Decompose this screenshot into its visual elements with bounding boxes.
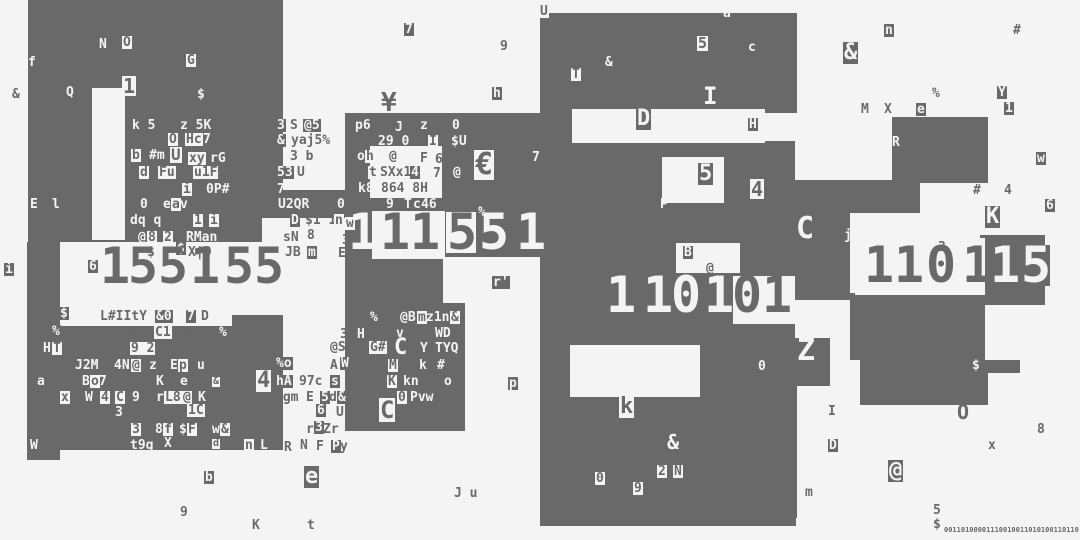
- glyph-run: &: [220, 423, 230, 436]
- glyph-run: T: [52, 342, 62, 355]
- glyph-run: F: [420, 152, 428, 165]
- glyph-run: SXx1: [380, 166, 411, 179]
- glyph-run: 7: [277, 183, 285, 196]
- glyph-run: m: [805, 486, 813, 499]
- glyph-run: 1: [180, 342, 188, 355]
- glyph-run: A: [330, 359, 338, 372]
- glyph-run: D: [828, 439, 838, 452]
- glyph-run: Hc: [185, 133, 203, 146]
- glyph-run: 3 b: [290, 150, 313, 163]
- glyph-run: U: [539, 5, 549, 18]
- glyph-run: &: [843, 42, 858, 64]
- glyph-run: #: [973, 184, 981, 197]
- glyph-run: X: [884, 103, 892, 116]
- glyph-run: &: [450, 311, 460, 324]
- center-number-digit: 1: [704, 275, 732, 316]
- glyph-run: O: [957, 402, 969, 422]
- glyph-run: &: [605, 56, 613, 69]
- glyph-run: n: [334, 214, 344, 227]
- glyph-run: b: [131, 149, 141, 162]
- glyph-run: xy: [188, 152, 206, 165]
- glyph-run: @: [452, 166, 462, 179]
- right-number-digit: 1: [962, 245, 990, 286]
- glyph-run: 8: [307, 229, 315, 242]
- mid-number-digit: 1: [348, 212, 376, 253]
- glyph-run: @: [131, 359, 141, 372]
- glyph-run: @S: [330, 341, 346, 354]
- mid-number-digit: 1: [410, 212, 438, 253]
- glyph-run: s: [788, 121, 796, 134]
- glyph-run: B: [683, 246, 693, 259]
- bg-block-dark: [892, 117, 988, 183]
- glyph-run: &: [212, 377, 220, 387]
- glyph-run: W: [29, 439, 39, 452]
- glyph-run: 1: [1004, 102, 1014, 115]
- left-number-digit: 5: [254, 246, 282, 287]
- glyph-run: Z: [797, 336, 815, 366]
- glyph-run: 29 0: [378, 135, 409, 148]
- glyph-run: $U: [451, 135, 467, 148]
- glyph-run: 9: [132, 391, 140, 404]
- glyph-run: 7: [99, 375, 107, 388]
- glyph-run: z 5K: [180, 119, 211, 132]
- glyph-run: N: [673, 465, 683, 478]
- glyph-run: #: [1013, 24, 1021, 37]
- glyph-run: p6: [355, 119, 371, 132]
- glyph-run: k: [419, 359, 427, 372]
- glyph-run: p: [508, 377, 518, 390]
- glyph-run: 3: [276, 119, 286, 132]
- glyph-run: R: [284, 441, 292, 454]
- glyph-run: Q: [66, 86, 74, 99]
- glyph-run: 6: [435, 153, 443, 166]
- glyph-run: E: [30, 198, 38, 211]
- glyph-run: x: [60, 391, 70, 404]
- glyph-run: H: [43, 342, 51, 355]
- glyph-run: w: [1036, 152, 1046, 165]
- glyph-run: b: [204, 471, 214, 484]
- glyph-run: x: [988, 439, 996, 452]
- glyph-run: €: [474, 150, 494, 180]
- glyph-run: 3: [115, 406, 123, 419]
- glyph-run: #m: [149, 149, 165, 162]
- center-number-digit: 0: [671, 275, 699, 316]
- glyph-run: 4N: [114, 359, 130, 372]
- glyph-run: kn: [403, 375, 419, 388]
- glyph-run: z: [420, 119, 428, 132]
- mid-number-digit: 1: [380, 212, 408, 253]
- glyph-run: @5: [303, 119, 321, 132]
- glyph-run: e: [916, 103, 926, 116]
- glyph-run: f: [28, 56, 36, 69]
- bg-block-light: [92, 88, 125, 240]
- glyph-run: 4: [410, 166, 420, 179]
- glyph-run: z1n: [426, 311, 449, 324]
- glyph-run: Y: [997, 86, 1007, 99]
- glyph-run: 2: [657, 465, 667, 478]
- bg-block-dark: [28, 0, 283, 242]
- glyph-run: 7: [203, 133, 211, 146]
- glyph-run: o: [357, 150, 365, 163]
- glyph-run: &: [667, 432, 679, 452]
- glyph-run: W: [85, 391, 93, 404]
- mid-number-digit: 5: [446, 212, 476, 253]
- glyph-run: X: [164, 437, 172, 450]
- glyph-run: 3: [378, 359, 386, 372]
- glyph-run: 5: [933, 504, 941, 517]
- glyph-run: R: [892, 136, 900, 149]
- glyph-run: dq q: [130, 214, 161, 227]
- glyph-run: 1C: [187, 404, 205, 417]
- glyph-run: 0: [595, 472, 605, 485]
- glyph-run: 5: [698, 163, 713, 185]
- glyph-run: Pvw: [410, 391, 433, 404]
- glyph-run: 864 8H: [381, 182, 428, 195]
- glyph-run: A: [844, 200, 852, 213]
- glyph-run: $: [59, 307, 69, 320]
- glyph-run: A: [275, 406, 283, 419]
- glyph-run: 7: [186, 310, 196, 323]
- glyph-run: 4: [1004, 184, 1012, 197]
- glyph-run: r': [492, 276, 510, 289]
- glyph-run: t: [368, 166, 378, 179]
- right-number-digit: 1: [864, 245, 892, 286]
- glyph-run: K: [985, 206, 1000, 228]
- glyph-run: F: [187, 423, 197, 436]
- glyph-run: H: [748, 118, 758, 131]
- glyph-run: C1: [154, 326, 172, 339]
- glyph-run: 6: [1045, 199, 1055, 212]
- glyph-run: J u: [454, 487, 477, 500]
- glyph-run: i: [4, 263, 14, 276]
- glyph-run: k8: [358, 182, 374, 195]
- glyph-run: v: [180, 198, 188, 211]
- glyph-run: %o: [275, 357, 293, 370]
- glyph-run: h: [492, 87, 502, 100]
- glyph-run: Zr: [323, 423, 339, 436]
- glyph-run: S: [290, 119, 298, 132]
- glyph-run: d: [212, 439, 220, 449]
- glyph-run: o: [444, 375, 452, 388]
- glyph-run: U: [297, 166, 305, 179]
- glyph-run: e: [180, 375, 188, 388]
- glyph-run: 3: [131, 423, 141, 436]
- glyph-run: hA: [275, 375, 293, 388]
- glyph-run: 53: [276, 166, 294, 179]
- bg-block-light: [572, 109, 765, 143]
- glyph-run: B: [82, 375, 90, 388]
- glyph-run: u1F: [193, 166, 218, 179]
- glyph-run: K: [387, 375, 397, 388]
- glitch-art-canvas: i&fNOGQ$1k 5z 5KOHc7b#mUxyrGdFuu1FSi0P#7…: [0, 0, 1080, 540]
- glyph-run: M: [861, 103, 869, 116]
- glyph-run: C: [115, 391, 125, 404]
- glyph-run: #: [436, 359, 446, 372]
- glyph-run: rG: [210, 152, 226, 165]
- glyph-run: $: [972, 359, 980, 372]
- glyph-run: u: [196, 359, 206, 372]
- glyph-run: 5: [697, 36, 708, 51]
- left-number-digit: 1: [190, 246, 218, 287]
- glyph-run: T: [571, 68, 581, 81]
- glyph-run: h: [365, 150, 375, 163]
- bg-block-dark: [850, 293, 985, 360]
- glyph-run: 1: [193, 214, 203, 227]
- glyph-run: r: [306, 423, 314, 436]
- binary-ticker: 00110100001110010011010100110110: [944, 526, 1079, 534]
- left-number-digit: 1: [100, 246, 128, 287]
- glyph-run: M: [388, 359, 398, 372]
- glyph-run: 97c: [299, 375, 322, 388]
- glyph-run: 1: [122, 76, 136, 96]
- glyph-run: P: [660, 198, 668, 211]
- glyph-run: C: [796, 214, 814, 244]
- glyph-run: k: [619, 396, 634, 418]
- glyph-run: 0: [140, 198, 148, 211]
- glyph-run: 7: [433, 167, 441, 180]
- glyph-run: D: [290, 214, 300, 227]
- glyph-run: &: [337, 391, 347, 404]
- glyph-run: &: [276, 134, 286, 147]
- left-number-digit: 5: [158, 246, 186, 287]
- right-number-digit: 5: [1020, 245, 1050, 286]
- glyph-run: j: [844, 229, 852, 242]
- glyph-run: t: [307, 519, 315, 532]
- glyph-run: 9: [180, 506, 188, 519]
- glyph-run: d: [329, 391, 337, 404]
- center-number-digit: 0: [732, 275, 760, 316]
- glyph-run: H: [356, 328, 366, 341]
- glyph-run: JB: [285, 246, 301, 259]
- glyph-run: 6: [88, 260, 98, 273]
- glyph-run: l: [52, 198, 60, 211]
- glyph-run: G: [186, 54, 196, 67]
- glyph-run: %: [370, 311, 378, 324]
- glyph-run: Fu: [158, 166, 176, 179]
- glyph-run: D: [636, 108, 651, 130]
- glyph-run: 4: [256, 370, 271, 392]
- glyph-run: 8: [1037, 423, 1045, 436]
- glyph-run: L#IItY: [100, 310, 147, 323]
- bg-block-dark: [720, 360, 797, 518]
- bg-block-light: [662, 157, 724, 203]
- glyph-run: C: [394, 337, 407, 359]
- glyph-run: L: [130, 328, 138, 341]
- glyph-run: K: [252, 519, 260, 532]
- mid-number-digit: 1: [516, 212, 544, 253]
- glyph-run: U: [170, 147, 182, 163]
- glyph-run: t9g: [130, 439, 153, 452]
- glyph-run: 0: [397, 391, 407, 404]
- glyph-run: @: [389, 150, 397, 163]
- glyph-run: z: [149, 359, 157, 372]
- glyph-run: s: [330, 375, 340, 388]
- glyph-run: TYQ: [435, 342, 458, 355]
- glyph-run: a: [723, 7, 731, 20]
- glyph-run: sgm: [275, 391, 298, 404]
- glyph-run: 7: [532, 151, 540, 164]
- glyph-run: m: [307, 246, 317, 259]
- glyph-run: d: [139, 166, 149, 179]
- glyph-run: w: [212, 423, 220, 436]
- glyph-run: 8: [155, 423, 163, 436]
- glyph-run: N: [300, 439, 308, 452]
- glyph-run: K: [156, 375, 164, 388]
- glyph-run: &: [12, 88, 20, 101]
- glyph-run: %: [932, 87, 940, 100]
- glyph-run: $: [933, 518, 941, 531]
- glyph-run: W: [340, 357, 350, 370]
- glyph-run: G#: [369, 341, 387, 354]
- mid-number-digit: 5: [479, 212, 507, 253]
- glyph-run: N: [99, 38, 107, 51]
- glyph-run: 9 2: [130, 342, 155, 355]
- glyph-run: r: [156, 391, 164, 404]
- glyph-run: 0: [337, 198, 345, 211]
- glyph-run: 0P#: [206, 183, 229, 196]
- glyph-run: $: [197, 88, 205, 101]
- glyph-run: %2: [184, 328, 200, 341]
- glyph-run: F: [316, 440, 324, 453]
- glyph-run: k 5: [132, 119, 155, 132]
- glyph-run: C: [379, 398, 395, 422]
- glyph-run: E: [306, 391, 314, 404]
- glyph-run: J: [395, 121, 403, 134]
- glyph-run: Y: [420, 342, 428, 355]
- glyph-run: yaj5%: [290, 134, 331, 147]
- bg-block-dark: [540, 13, 797, 113]
- glyph-run: WD: [435, 327, 451, 340]
- glyph-run: @B: [400, 311, 416, 324]
- glyph-run: n: [884, 24, 894, 37]
- glyph-run: %: [51, 325, 61, 338]
- glyph-run: f: [163, 423, 173, 436]
- right-number-digit: 0: [926, 245, 954, 286]
- right-number-digit: 1: [894, 245, 922, 286]
- glyph-run: i: [182, 183, 192, 196]
- center-number-digit: 1: [606, 275, 634, 316]
- glyph-run: sN: [283, 231, 299, 244]
- glyph-run: y: [340, 440, 348, 453]
- right-number-digit: 1: [990, 245, 1018, 286]
- glyph-run: I: [428, 135, 438, 148]
- glyph-run: E: [170, 359, 178, 372]
- glyph-run: e: [304, 466, 319, 488]
- glyph-run: I: [828, 405, 836, 418]
- glyph-run: p: [178, 359, 188, 372]
- glyph-run: 6: [316, 404, 326, 417]
- glyph-run: 9: [500, 40, 508, 53]
- glyph-run: 7: [404, 23, 414, 36]
- center-number-digit: 1: [643, 275, 671, 316]
- glyph-run: 4: [100, 391, 110, 404]
- left-number-digit: 5: [128, 246, 156, 287]
- glyph-run: U C: [336, 406, 359, 419]
- glyph-run: 2: [236, 455, 244, 468]
- glyph-run: 9: [633, 482, 643, 495]
- glyph-run: O: [122, 36, 132, 49]
- glyph-run: S: [126, 176, 139, 198]
- glyph-run: $1 1: [305, 214, 336, 227]
- glyph-run: U2QR: [278, 198, 309, 211]
- glyph-run: i: [209, 214, 219, 227]
- glyph-run: c: [748, 41, 756, 54]
- glyph-run: a: [37, 375, 45, 388]
- glyph-run: D: [201, 310, 209, 323]
- glyph-run: @: [888, 460, 903, 482]
- glyph-run: %: [218, 326, 228, 339]
- glyph-run: J2M: [75, 359, 98, 372]
- glyph-run: ¥: [381, 90, 397, 116]
- glyph-run: L: [260, 439, 268, 452]
- glyph-run: 0: [452, 119, 460, 132]
- glyph-run: 4: [750, 179, 764, 199]
- center-number-digit: 1: [762, 275, 790, 316]
- glyph-run: $: [179, 423, 187, 436]
- glyph-run: n: [244, 439, 254, 452]
- bg-block-dark: [860, 360, 1020, 373]
- bg-block-light: [570, 345, 700, 397]
- glyph-run: Sb: [210, 359, 226, 372]
- glyph-run: &0: [155, 310, 173, 323]
- glyph-run: L8: [164, 391, 182, 404]
- glyph-run: I: [703, 84, 717, 108]
- glyph-run: %: [452, 393, 460, 406]
- glyph-run: 0: [758, 360, 766, 373]
- glyph-run: e: [163, 198, 171, 211]
- left-number-digit: 5: [224, 246, 252, 287]
